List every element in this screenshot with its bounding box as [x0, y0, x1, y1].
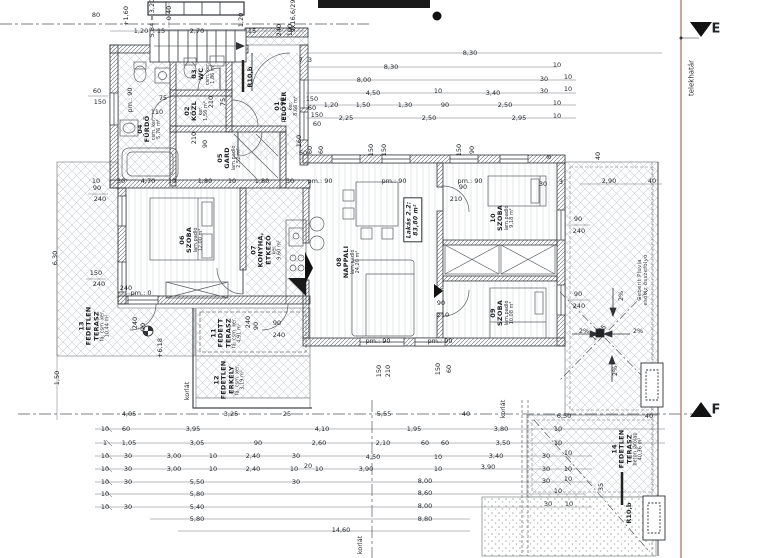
dim-label: 8,00 — [357, 77, 371, 84]
dim-label: 3,25 — [224, 411, 238, 418]
dim-label: 3,40 — [489, 453, 503, 460]
property-line-label: telekhatár — [689, 60, 696, 96]
dim-label: 90 — [574, 291, 582, 298]
dim-label: 60 — [313, 121, 321, 128]
dim-label: 90 — [574, 216, 582, 223]
dim-label: 3,90 — [481, 464, 495, 471]
dim-label: 150 — [94, 99, 106, 106]
dim-label: 3,05 — [190, 440, 204, 447]
dim-label: 10 — [101, 504, 109, 511]
dim-label: 240 — [573, 228, 585, 235]
dim-label: 30 — [124, 453, 132, 460]
dim-label: 10 — [564, 74, 572, 81]
room-label-wc: 03WCcsm. ker.1,86 m² — [191, 63, 217, 85]
dim-label: 150 — [311, 112, 323, 119]
dim-label: 40 — [595, 152, 602, 160]
dim-label: 150 — [376, 365, 383, 377]
dim-label: 10 — [101, 466, 109, 473]
dim-label: 5,55 — [377, 411, 391, 418]
dim-label: 1,20 — [238, 13, 245, 27]
dim-label: 10 — [564, 450, 572, 457]
railing-label: korlát — [357, 536, 364, 555]
dim-label: 30 — [124, 466, 132, 473]
dim-label: 10 — [553, 62, 561, 69]
dim-label: 10 — [564, 476, 572, 483]
dim-label: 90 — [140, 323, 147, 331]
dim-label: 150 — [435, 363, 442, 375]
dim-label: 8,00 — [418, 478, 432, 485]
room-label-nappali: 08NAPPALIlam.padló24,20 m² — [336, 246, 362, 278]
room-label-gard: 05GARDlam.padló2,52 m² — [217, 146, 243, 171]
slope-label: 2% — [618, 291, 625, 301]
dim-label: 1,50 — [356, 102, 370, 109]
section-cut-bar — [318, 0, 430, 8]
property-line — [680, 0, 713, 558]
railing-label: korlát — [500, 400, 507, 419]
floor-plan-drawing — [0, 0, 768, 558]
dim-label: 240 — [273, 332, 285, 339]
dim-label: 3,00 — [167, 466, 181, 473]
dim-label: 10 — [101, 426, 109, 433]
dim-label: 30 — [540, 88, 548, 95]
dim-label: 240 — [573, 303, 585, 310]
dim-label: 8,60 — [418, 490, 432, 497]
dim-label: 10 — [564, 86, 572, 93]
dim-label: 10 — [168, 178, 176, 185]
window — [557, 285, 565, 315]
room-label-konyha: 07KONYHA,ÉTKEZŐker.9,60 m² — [251, 233, 284, 268]
slope-label: 2% — [579, 328, 589, 335]
dim-label: 15 — [157, 28, 165, 35]
dim-label: 5,50 — [190, 479, 204, 486]
dim-label: 60 — [318, 146, 325, 154]
marker-e-icon — [690, 22, 712, 37]
window — [557, 210, 565, 240]
dim-label: 5,84 = 3,20 — [149, 0, 156, 37]
floor-plan: 800,405,84 = 3,20+1,609x16,6/291,20152,7… — [0, 0, 768, 558]
dim-label: 90 — [254, 440, 262, 447]
dim-label: 160 — [296, 135, 303, 147]
dim-label: 10 — [92, 178, 100, 185]
dim-label: 4,50 — [366, 90, 380, 97]
roof-drain-top — [433, 12, 442, 21]
dim-label: 30 — [542, 478, 550, 485]
level-label: +6,18 — [157, 338, 164, 358]
downpipe-label: R10,b — [626, 502, 633, 523]
dim-label: 10 — [434, 466, 442, 473]
dim-label: 60 — [446, 365, 453, 373]
dim-label: pm.: 0 — [131, 290, 152, 297]
dim-label: 90 — [459, 184, 467, 191]
dim-label: 6,30 — [52, 251, 59, 265]
dim-label: 40 — [648, 178, 656, 185]
dim-label: 10 — [554, 426, 562, 433]
dim-label: 2,95 — [512, 115, 526, 122]
dim-label: 5,80 — [190, 491, 204, 498]
marker-f-icon — [690, 402, 712, 417]
dim-label: 35 — [598, 483, 605, 491]
dim-label: 3 — [308, 57, 312, 64]
dim-label: 240 — [93, 281, 105, 288]
dim-label: 30 — [292, 479, 300, 486]
dim-label: 150 — [381, 144, 388, 156]
dim-label: 3,80 — [494, 426, 508, 433]
dim-label: 30 — [286, 178, 294, 185]
dim-label: 3,00 — [167, 453, 181, 460]
dim-label: 30 — [539, 181, 547, 188]
dim-label: 90 — [273, 320, 281, 327]
room-label-fedetlen-terasz-13: 13FEDETLENTERASZfá. csm. ker.10,44 m² — [79, 307, 112, 346]
dim-label: 10 — [101, 453, 109, 460]
dim-label: 90 — [253, 322, 260, 330]
dim-label: 10 — [209, 466, 217, 473]
dim-label: 80 — [92, 12, 100, 19]
dim-label: 150 — [456, 144, 463, 156]
apartment-area-box: Lakás 2.2:83,80 m² — [403, 198, 422, 243]
dim-label: 2,60 — [312, 440, 326, 447]
dim-label: 5,40 — [190, 504, 204, 511]
dim-label: 90 — [437, 300, 445, 307]
dim-label: 1,80 — [198, 178, 212, 185]
dim-label: 110 — [151, 109, 163, 116]
dim-label: 1,80 — [255, 178, 269, 185]
dim-label: 8,30 — [463, 50, 477, 57]
dim-label: 10 — [209, 453, 217, 460]
dim-label: 10 — [101, 491, 109, 498]
built-in-wardrobe — [445, 245, 499, 274]
dim-label: 60 — [93, 88, 101, 95]
dim-label: 2,40 — [246, 466, 260, 473]
dim-label: 40 — [645, 413, 653, 420]
dim-label: pm.: 90 — [427, 338, 452, 345]
dim-label: 210 — [437, 312, 449, 319]
room-label-szoba-09: 09SZOBAlam.padló10,08 m² — [490, 300, 516, 326]
dim-label: 30 — [542, 466, 550, 473]
dim-label: 10 — [564, 466, 572, 473]
dim-label: 10 — [553, 113, 561, 120]
dim-label: 90 — [469, 146, 476, 154]
dim-label: 1,30 — [398, 102, 412, 109]
window — [118, 196, 126, 226]
window — [332, 155, 360, 163]
dim-label: 7 — [299, 57, 303, 64]
downpipe-label: R10,b — [247, 66, 254, 87]
dim-label: 14,60 — [332, 527, 351, 534]
dim-label: 10 — [101, 479, 109, 486]
room-label-fedett-terasz: 11FEDETTTERASZfá. csm. ker.4,91 m² — [211, 318, 244, 348]
dim-label: 15 — [248, 28, 256, 35]
room-label-kozl: 02KÖZLker.1,56 m² — [184, 101, 210, 121]
slope-label: 2% — [633, 328, 643, 335]
dim-label: 240 — [120, 285, 132, 292]
dim-label: 8,80 — [418, 516, 432, 523]
dim-label: 2,25 — [339, 115, 353, 122]
dim-label: 240 — [245, 316, 252, 328]
dim-label: 2,90 — [602, 178, 616, 185]
dim-label: 3,90 — [359, 466, 373, 473]
dim-label: 75 — [220, 98, 227, 106]
dim-label: 1,20 — [324, 102, 338, 109]
dim-label: 3 — [559, 179, 563, 186]
dim-label: 210 — [191, 132, 198, 144]
dim-label: 2,70 — [190, 28, 204, 35]
dim-label: 30 — [124, 504, 132, 511]
dim-label: 30 — [117, 178, 125, 185]
dim-label: 10 — [228, 178, 236, 185]
roof-drain-note: Geberit Pluviaesővíz összefolyó — [637, 254, 649, 305]
dim-label: 10 — [434, 88, 442, 95]
dim-label: 2,50 — [498, 102, 512, 109]
dim-label: 4,70 — [141, 178, 155, 185]
room-label-furdo: 04FÜRDŐcsm. ker.5,76 m² — [137, 116, 163, 143]
dim-label: 8 — [546, 155, 553, 159]
dim-label: 8,00 — [418, 503, 432, 510]
dim-label: 5,80 — [190, 516, 204, 523]
dim-label: 30 — [542, 453, 550, 460]
dim-label: 210 — [450, 196, 462, 203]
dim-label: 210 — [385, 365, 392, 377]
terrace-door — [128, 296, 158, 304]
marker-f-label: F — [712, 404, 721, 417]
terrace-step-edge — [196, 398, 310, 408]
dim-label: +1,60 — [123, 6, 130, 26]
dim-label: 8,30 — [384, 64, 398, 71]
dim-label: 1,20 — [134, 28, 148, 35]
window — [110, 93, 118, 125]
dim-label: 240 — [276, 24, 283, 36]
dim-label: 30 — [292, 453, 300, 460]
dim-label: 60 — [307, 146, 314, 154]
dim-label: 1,50 — [54, 371, 61, 385]
dim-label: 150 — [368, 144, 375, 156]
room-label-eloter: 01ELŐTÉRker.8,66 m² — [274, 91, 300, 120]
dim-label: 0,40 — [166, 6, 173, 20]
dim-label: pm.: 90 — [307, 178, 332, 185]
dim-label: 10 — [315, 466, 323, 473]
dim-label: 40 — [462, 411, 470, 418]
window — [500, 155, 528, 163]
dim-label: 30 — [124, 479, 132, 486]
dim-label: 30 — [544, 501, 552, 508]
dim-label: 90 — [202, 140, 209, 148]
marker-e-label: E — [712, 23, 721, 36]
dim-label: 2,50 — [422, 115, 436, 122]
dim-label: 60 — [122, 426, 130, 433]
dim-label: 1,05 — [122, 440, 136, 447]
dim-label: 90 — [441, 102, 449, 109]
dim-label: 10 — [565, 501, 573, 508]
room-label-fedetlen-terasz-14: 14FEDETLENTERASZbeton járólap40,36 m² — [612, 430, 645, 469]
dim-label: 100 — [287, 24, 294, 36]
room-label-szoba-06: 06SZOBAlam.padló12,00 m² — [179, 227, 205, 253]
railing-label: korlát — [184, 382, 191, 401]
dim-label: 6,50 — [557, 413, 571, 420]
slope-label: 2% — [612, 366, 619, 376]
dim-label: 3,50 — [496, 440, 510, 447]
dim-label: 10 — [434, 454, 442, 461]
dim-label: 4,50 — [366, 454, 380, 461]
dim-label: 90 — [93, 185, 101, 192]
dim-label: 1 — [103, 440, 107, 447]
dim-label: 150 — [90, 270, 102, 277]
dim-label: pm.: 90 — [127, 87, 134, 112]
dim-label: 3,40 — [486, 90, 500, 97]
dim-label: 20 — [304, 463, 312, 470]
dim-label: 10 — [554, 440, 562, 447]
dim-label: 1,95 — [407, 426, 421, 433]
dim-label: 2,40 — [246, 453, 260, 460]
dim-label: 60 — [421, 440, 429, 447]
dim-label: 150 — [306, 96, 318, 103]
dim-label: 2,10 — [376, 440, 390, 447]
dim-label: pm.: 90 — [365, 338, 390, 345]
built-in-wardrobe — [501, 245, 555, 274]
dim-label: 10 — [290, 466, 298, 473]
dim-label: 75 — [159, 95, 167, 102]
room-label-szoba-10: 10SZOBAlam.padló9,18 m² — [490, 205, 516, 231]
dim-label: 3,95 — [186, 426, 200, 433]
dim-label: 25 — [283, 411, 291, 418]
dim-label: 4,05 — [122, 411, 136, 418]
dim-label: pm.: 90 — [381, 178, 406, 185]
room-label-erkely: 12FEDETLENERKÉLYfá. csm. ker.3,19 m² — [214, 361, 247, 400]
dim-label: 240 — [94, 196, 106, 203]
dim-label: 10 — [554, 488, 562, 495]
dim-label: 10 — [553, 100, 561, 107]
dim-label: 30 — [540, 76, 548, 83]
dim-label: 60 — [441, 440, 449, 447]
dim-label: 4,10 — [315, 426, 329, 433]
dim-label: 240 — [132, 317, 139, 329]
